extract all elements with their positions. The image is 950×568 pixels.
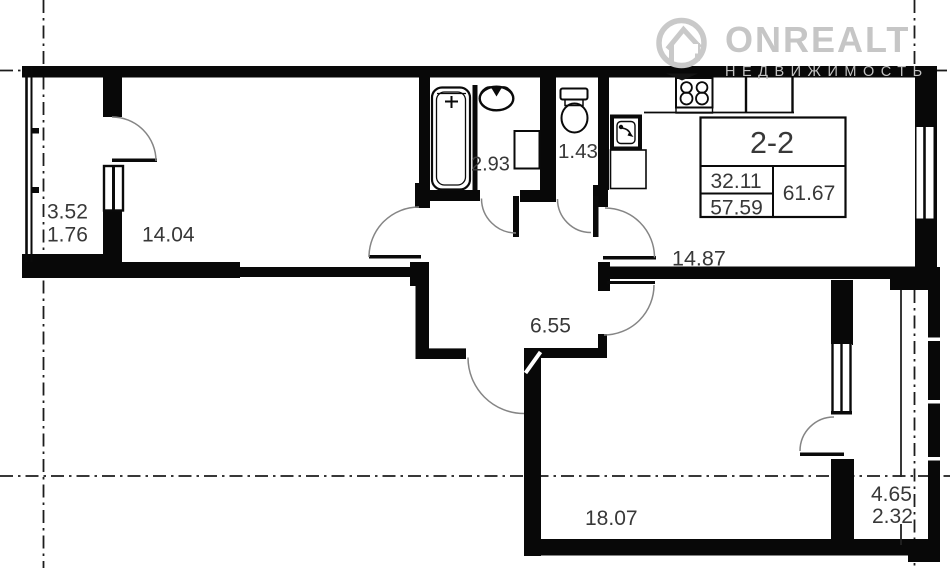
svg-text:61.67: 61.67 [783,182,836,205]
svg-text:ONREALT: ONREALT [725,19,910,60]
svg-text:3.52: 3.52 [47,201,88,224]
svg-text:1.43: 1.43 [558,140,598,163]
svg-text:4.65: 4.65 [871,483,912,506]
svg-text:18.07: 18.07 [585,507,638,530]
svg-text:2-2: 2-2 [750,126,794,160]
svg-text:2.93: 2.93 [471,154,510,176]
svg-text:57.59: 57.59 [710,197,763,220]
svg-text:6.55: 6.55 [530,315,571,338]
svg-text:32.11: 32.11 [711,170,762,193]
svg-text:14.04: 14.04 [142,224,195,247]
svg-text:1.76: 1.76 [47,224,88,247]
svg-text:2.32: 2.32 [872,505,913,528]
svg-text:НЕДВИЖИМОСТЬ: НЕДВИЖИМОСТЬ [725,64,929,80]
svg-text:14.87: 14.87 [672,247,726,271]
